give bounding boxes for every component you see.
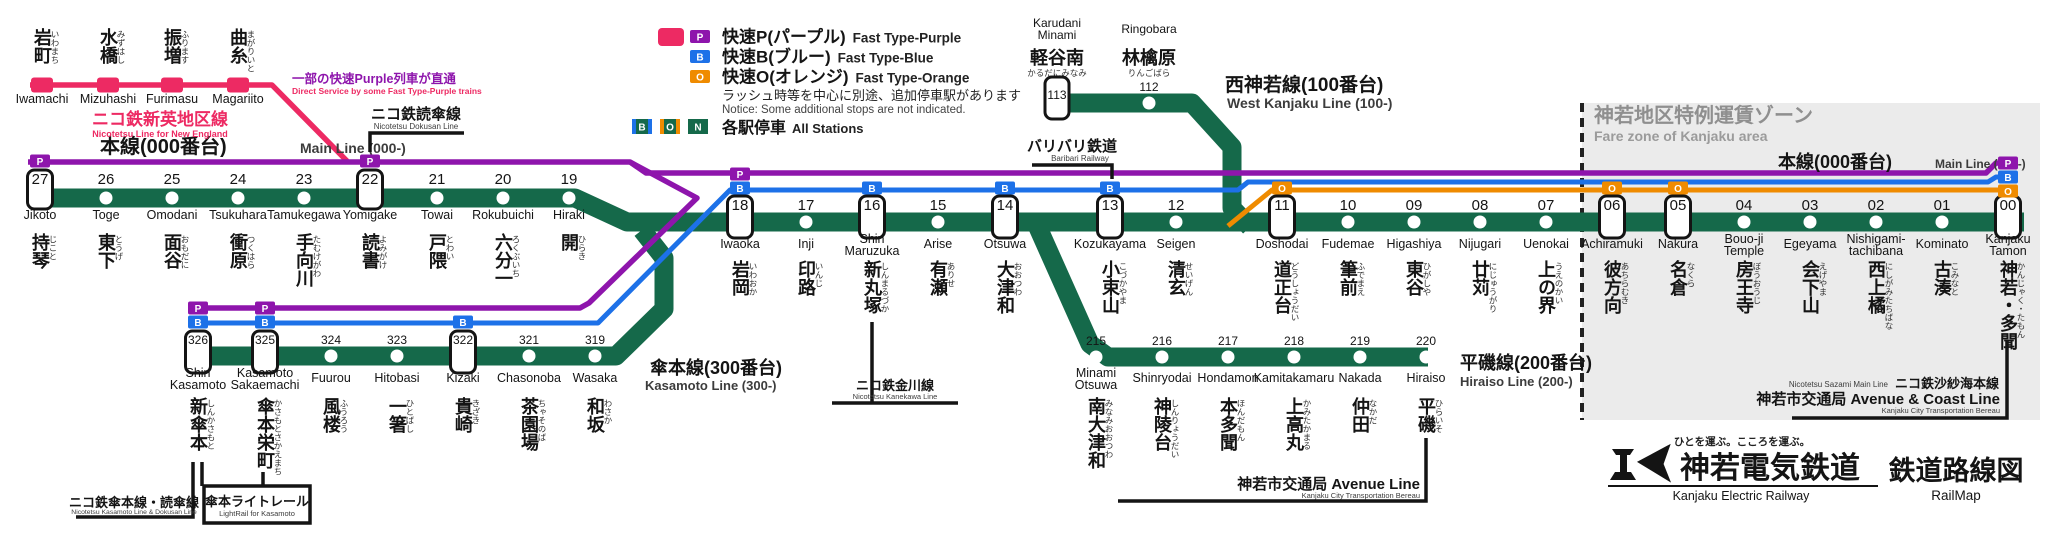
local-station-dot — [1420, 351, 1433, 364]
station-name-kana: おおつわ — [1013, 262, 1023, 296]
station-number: 11 — [1274, 197, 1290, 214]
station-name-kana: つくはら — [246, 235, 256, 269]
O-badge: O — [1668, 182, 1688, 196]
badge-letter: P — [262, 304, 269, 315]
station-name-kana: ろくぶいち — [511, 235, 521, 278]
O-badge: O — [1602, 182, 1622, 196]
station-jikoto: P27Jikoto持琴じこと — [24, 155, 58, 270]
station-name-jp: 振増 — [162, 27, 182, 65]
B-badge: B — [255, 316, 275, 330]
station-romaji: tachibana — [1849, 244, 1903, 258]
station-name-kana: えげやま — [1818, 262, 1828, 296]
station-romaji: Seigen — [1157, 237, 1196, 251]
P-badge: P — [730, 168, 750, 182]
kasamoto-stations: PB326ShinKasamoto新傘本しんかさもとPB325KasamotoS… — [170, 302, 618, 476]
station-number: 22 — [362, 171, 379, 188]
station-seigen: 12Seigen清玄せいげん — [1157, 197, 1196, 296]
station-romaji: Chasonoba — [497, 371, 561, 385]
station-name-jp: 持琴 — [30, 232, 50, 270]
station-name-kana: しんかさもと — [206, 399, 216, 450]
station-name-kana: しんりょうだい — [1170, 399, 1180, 459]
station-number: 02 — [1868, 197, 1885, 214]
station-romaji: Minami — [1038, 28, 1077, 42]
main-line-label-en: Main Line (000-) — [300, 140, 406, 156]
station-name-jp: 貴崎 — [453, 396, 473, 434]
station-name-kana: あちらむき — [1620, 262, 1630, 305]
station-name-jp: 和坂 — [585, 397, 605, 434]
station-name-kana: おもだに — [180, 235, 190, 269]
local-station-dot — [1408, 216, 1421, 229]
station-iwamachi: Iwamachi岩町いわまち — [16, 27, 69, 106]
station-fudemae: 10Fudemae筆前ふでまえ — [1322, 197, 1375, 297]
station-romaji: Nakada — [1338, 371, 1381, 385]
B-badge: B — [862, 182, 882, 196]
station-number: 24 — [230, 171, 247, 188]
station-name-jp: 風楼 — [321, 397, 341, 434]
k-arrow-glyph — [1640, 447, 1668, 479]
kasamoto-dokusan-label-en: Nicotetsu Kasamoto Line & Dokusan Line — [71, 509, 197, 516]
station-number: 15 — [930, 197, 947, 214]
station-number: 218 — [1284, 334, 1304, 348]
local-station-dot — [1936, 216, 1949, 229]
legend-notice-jp: ラッシュ時等を中心に別途、追加停車駅があります — [722, 88, 1021, 103]
station-number: 325 — [255, 333, 275, 347]
station-name-kana: じこと — [48, 235, 58, 261]
P-badge: P — [690, 30, 710, 44]
pink-station-marker — [161, 78, 183, 93]
P-badge: P — [1998, 157, 2018, 171]
station-kizaki: B322Kizaki貴崎きざき — [446, 316, 481, 434]
station-name-jp: 印路 — [796, 260, 816, 297]
station-mizuhashi: Mizuhashi水橋みずはし — [80, 27, 136, 106]
station-hiraki: 19Hiraki開ひらき — [553, 171, 587, 261]
baribari-label-en: Baribari Railway — [1051, 154, 1109, 163]
station-romaji: Shinryodai — [1132, 371, 1191, 385]
company-logo: ひとを運ぶ。こころを運ぶ。神若電気鉄道Kanjaku Electric Rail… — [1608, 436, 2024, 503]
station-name-jp: 茶園場 — [519, 396, 539, 452]
station-name-jp: 古湊 — [1932, 259, 1952, 297]
station-name-jp: 曲糸 — [228, 28, 248, 64]
badge-letter: B — [638, 123, 645, 134]
local-station-dot — [1222, 351, 1235, 364]
station-name-kana: ぼうおうじ — [1752, 262, 1762, 305]
local-station-dot — [1738, 216, 1751, 229]
local-station-dot — [166, 192, 179, 205]
lightrail-label-en: LightRail for Kasamoto — [219, 509, 295, 518]
station-name-jp: 小束山 — [1100, 260, 1120, 315]
station-name-kana: ふります — [180, 30, 190, 64]
station-romaji: Fudemae — [1322, 237, 1375, 251]
badge-letter: B — [696, 53, 703, 64]
local-station-dot — [1143, 97, 1156, 110]
station-name-kana: ひとばし — [405, 399, 415, 433]
kasamoto-dokusan-label-jp: ニコ鉄傘本線・読傘線 — [69, 495, 200, 510]
station-romaji: Otsuwa — [1075, 378, 1117, 392]
station-romaji: Hiraiso — [1407, 371, 1446, 385]
local-station-dot — [1288, 351, 1301, 364]
station-name-kana: ちゃそのば — [537, 399, 547, 442]
B-badge: B — [690, 50, 710, 64]
station-number: 12 — [1168, 197, 1185, 214]
station-yomigake: P22Yomigake読書よみがけ — [343, 155, 397, 270]
O-badge: O — [1272, 182, 1292, 196]
station-kozukayama: B13Kozukayama小束山こづかやま — [1074, 182, 1146, 315]
station-name-kana: ふでまえ — [1356, 262, 1366, 296]
station-name-kana: なかだ — [1368, 399, 1378, 425]
station-romaji: Achiramuki — [1581, 237, 1643, 251]
legend-row-label: 快速P(パープル)Fast Type-Purple — [722, 27, 962, 47]
local-station-dot — [1342, 216, 1355, 229]
station-towai: 21Towai戸隈とわい — [421, 171, 455, 270]
station-toge: 26Toge東下とうげ — [92, 171, 124, 270]
pink-line-swatch — [658, 28, 684, 46]
sazami-label-en: Nicotetsu Sazami Main Line — [1789, 380, 1889, 389]
station-name-jp: 面谷 — [162, 233, 182, 270]
station-number: 326 — [188, 333, 208, 347]
station-romaji: Sakaemachi — [231, 378, 300, 392]
station-rokubuichi: 20Rokubuichi六分一ろくぶいち — [472, 171, 534, 287]
station-name-kana: きざき — [471, 399, 481, 425]
station-number: 26 — [98, 171, 115, 188]
local-station-dot — [325, 350, 338, 363]
badge-letter: B — [459, 318, 466, 329]
station-number: 323 — [387, 333, 407, 347]
badge-letter: O — [1608, 184, 1616, 195]
station-name-kana: わさか — [603, 399, 613, 425]
station-number: 17 — [798, 197, 815, 214]
local-station-dot — [100, 192, 113, 205]
legend: P快速P(パープル)Fast Type-PurpleB快速B(ブルー)Fast … — [632, 27, 1021, 138]
baribari-label-jp: バリバリ鉄道 — [1027, 137, 1117, 155]
lightrail-label-jp: 傘本ライトレール — [205, 494, 309, 509]
station-name-kana: かんじゃく・たもん — [2016, 262, 2026, 339]
badge-letter: P — [37, 157, 44, 168]
station-name-jp: 戸隈 — [427, 233, 447, 270]
station-number: 03 — [1802, 197, 1819, 214]
badge-letter: O — [1674, 184, 1682, 195]
B-badge: B — [453, 316, 473, 330]
station-number: 215 — [1086, 334, 1106, 348]
west-line-label-en: West Kanjaku Line (100-) — [1227, 95, 1392, 111]
station-romaji: Wasaka — [573, 371, 618, 385]
company-name-en: Kanjaku Electric Railway — [1673, 489, 1811, 503]
station-name-kana: よみがけ — [378, 235, 388, 269]
station-romaji: Hitobasi — [374, 371, 419, 385]
local-station-dot — [1156, 351, 1169, 364]
legend-row-label: 快速O(オレンジ)Fast Type-Orange — [722, 67, 970, 87]
station-name-kana: みなみおおつわ — [1104, 399, 1114, 459]
fare-zone-title-en: Fare zone of Kanjaku area — [1594, 128, 1768, 144]
P-badge: P — [30, 155, 50, 169]
station-romaji: Iwaoka — [720, 237, 760, 251]
station-omodani: 25Omodani面谷おもだに — [147, 171, 198, 270]
pink-station-marker — [97, 78, 119, 93]
station-name-kana: にじゅうがり — [1488, 262, 1498, 313]
station-number: 05 — [1670, 197, 1687, 214]
lightrail-stems — [202, 462, 263, 486]
station-romaji: Tamukegawa — [267, 208, 341, 222]
station-name-kana: りんごばら — [1128, 68, 1171, 78]
station-number: 13 — [1102, 197, 1119, 214]
station-name-jp: 南大津和 — [1086, 396, 1106, 470]
station-number: 113 — [1047, 88, 1066, 102]
local-station-dot — [932, 216, 945, 229]
station-name-jp: 新傘本 — [188, 396, 208, 452]
station-arise: 15Arise有瀬ありせ — [924, 197, 956, 297]
station-romaji: Arise — [924, 237, 953, 251]
main-line-label-right-jp: 本線(000番台) — [1778, 151, 1892, 172]
badge-letter: B — [868, 184, 875, 195]
station-romaji: Tsukuhara — [209, 208, 267, 222]
new-england-stations: Iwamachi岩町いわまちMizuhashi水橋みずはしFurimasu振増ふ… — [16, 27, 264, 106]
station-romaji: Nijugari — [1459, 237, 1501, 251]
local-station-dot — [1354, 351, 1367, 364]
station-doshodai: O11Doshodai道正台どうしょうだい — [1256, 182, 1309, 322]
local-station-dot — [563, 192, 576, 205]
kasamoto-line-label-jp: 傘本線(300番台) — [650, 357, 782, 378]
station-name-kana: かみたかまる — [1302, 399, 1312, 450]
station-magariito: Magariito曲糸まがりいと — [212, 28, 263, 106]
station-name-kana: みずはし — [116, 30, 126, 64]
station-number: 01 — [1934, 197, 1951, 214]
badge-letter: B — [194, 318, 201, 329]
map-title-jp: 鉄道路線図 — [1889, 455, 2024, 486]
local-station-dot — [1090, 351, 1103, 364]
station-number: 27 — [32, 171, 49, 188]
station-romaji: Higashiya — [1387, 237, 1442, 251]
station-tsukuhara: 24Tsukuhara衝原つくはら — [209, 171, 267, 270]
station-number: 216 — [1152, 334, 1172, 348]
sazami-label-jp: ニコ鉄沙紗海本線 — [1895, 376, 2000, 391]
station-number: 20 — [495, 171, 512, 188]
station-shin-maruzuka: B16ShinMaruzuka新丸塚しんまるづか — [845, 182, 900, 315]
station-name-kana: うえのかい — [1554, 262, 1564, 305]
station-name-jp: 房王寺 — [1734, 259, 1754, 314]
station-name-jp: 林檎原 — [1122, 47, 1176, 68]
station-romaji: Uenokai — [1523, 237, 1569, 251]
station-romaji: Nakura — [1658, 237, 1698, 251]
station-romaji: Furimasu — [146, 92, 198, 106]
station-number: 09 — [1406, 197, 1423, 214]
station-romaji: Kamitakamaru — [1254, 371, 1335, 385]
local-station-dot — [391, 350, 404, 363]
station-romaji: Jikoto — [24, 208, 57, 222]
O-badge: O — [690, 70, 710, 84]
station-number: 23 — [296, 171, 313, 188]
station-romaji: Omodani — [147, 208, 198, 222]
station-romaji: Kominato — [1916, 237, 1969, 251]
station-number: 25 — [164, 171, 181, 188]
station-name-jp: 上の界 — [1536, 260, 1556, 315]
local-station-dot — [523, 350, 536, 363]
station-romaji: Doshodai — [1256, 237, 1309, 251]
station-number: 06 — [1604, 197, 1621, 214]
station-name-jp: 軽谷南 — [1030, 47, 1084, 68]
station-romaji: Toge — [92, 208, 119, 222]
badge-letter: P — [367, 157, 374, 168]
local-station-dot — [1170, 216, 1183, 229]
station-name-jp: 六分一 — [493, 232, 513, 287]
main_left-stations: P27Jikoto持琴じこと26Toge東下とうげ25Omodani面谷おもだに… — [24, 155, 587, 288]
station-name-jp: 会下山 — [1800, 259, 1820, 315]
station-name-kana: まがりいと — [246, 30, 256, 73]
hiraiso-line-label-jp: 平磯線(200番台) — [1460, 352, 1592, 373]
station-name-jp: 平磯 — [1416, 397, 1436, 434]
local-O-badge: O — [660, 119, 680, 134]
station-romaji: Tamon — [1989, 244, 2027, 258]
railway-route-map: 神若地区特例運賃ゾーンFare zone of Kanjaku area本線(0… — [0, 0, 2048, 541]
station-name-jp: 大津和 — [995, 259, 1015, 315]
station-number: 324 — [321, 333, 341, 347]
station-number: 322 — [453, 333, 473, 347]
P-badge: P — [360, 155, 380, 169]
station-name-kana: せいげん — [1184, 262, 1194, 296]
station-romaji: Magariito — [212, 92, 263, 106]
badge-letter: B — [736, 184, 743, 195]
station-name-kana: ひらいそ — [1434, 399, 1444, 433]
B-badge: B — [995, 182, 1015, 196]
legend-row-label: 快速B(ブルー)Fast Type-Blue — [722, 47, 934, 67]
station-number: 14 — [997, 197, 1014, 214]
station-number: 18 — [732, 197, 749, 214]
station-number: 219 — [1350, 334, 1370, 348]
station-romaji: Egeyama — [1784, 237, 1837, 251]
company-name-jp: 神若電気鉄道 — [1680, 451, 1860, 485]
station-name-jp: 仲田 — [1350, 396, 1370, 433]
avenue-label-en: Kanjaku City Transportation Bereau — [1302, 491, 1420, 500]
legend-row-1: B快速B(ブルー)Fast Type-Blue — [690, 47, 934, 67]
map-title-en: RailMap — [1931, 488, 1981, 503]
direct-service-note-jp: 一部の快速Purple列車が直通 — [292, 71, 456, 86]
station-name-kana: こみなと — [1950, 262, 1960, 296]
dokusan-label-en: Nicotetsu Dokusan Line — [374, 122, 459, 131]
local-station-dot — [1540, 216, 1553, 229]
station-name-kana: いわおか — [748, 262, 758, 296]
local-B-badge: B — [632, 119, 652, 134]
station-name-kana: たむけがわ — [312, 235, 322, 278]
station-number: 10 — [1340, 197, 1357, 214]
station-inji: 17Inji印路いんじ — [796, 197, 824, 297]
local-station-dot — [589, 350, 602, 363]
coast-label-en: Kanjaku City Transportation Bereau — [1882, 406, 2000, 415]
station-number: 220 — [1416, 334, 1436, 348]
station-name-kana: とうげ — [114, 235, 124, 261]
badge-letter: P — [2005, 159, 2012, 170]
station-name-kana: しんまるづか — [880, 262, 890, 313]
kanekawa-label-jp: ニコ鉄金川線 — [856, 378, 935, 393]
local-station-dot — [497, 192, 510, 205]
rail-profile-glyph — [1610, 449, 1636, 480]
local-N-badge: N — [688, 119, 708, 134]
local-station-dot — [232, 192, 245, 205]
station-name-kana: いわまち — [50, 30, 60, 64]
B-badge: B — [1100, 182, 1120, 196]
station-iwaoka: PB18Iwaoka岩岡いわおか — [720, 168, 760, 297]
badge-letter: P — [737, 170, 744, 181]
station-name-kana: かさもとさかえまち — [273, 399, 283, 476]
local-station-dot — [1804, 216, 1817, 229]
station-romaji: Rokubuichi — [472, 208, 534, 222]
station-number: 00 — [2000, 197, 2017, 214]
station-name-jp: 読書 — [360, 232, 380, 270]
station-name-jp: 筆前 — [1338, 259, 1358, 297]
local-station-dot — [431, 192, 444, 205]
station-kasamoto-sakaemachi: PB325KasamotoSakaemachi傘本栄町かさもとさかえまち — [231, 302, 300, 476]
station-romaji: Fuurou — [311, 371, 351, 385]
station-romaji: Mizuhashi — [80, 92, 136, 106]
station-romaji: Kasamoto — [170, 378, 226, 392]
new-england-label-en: Nicotetsu Line for New England — [92, 129, 228, 139]
station-name-kana: ひらき — [577, 235, 587, 261]
legend-notice-en: Notice: Some additional stops are not in… — [722, 104, 966, 116]
station-romaji: Otsuwa — [984, 237, 1026, 251]
station-name-jp: 彼方向 — [1602, 259, 1622, 315]
station-romaji: Kizaki — [446, 371, 479, 385]
station-name-kana: いんじ — [814, 262, 824, 288]
legend-row-2: O快速O(オレンジ)Fast Type-Orange — [690, 67, 970, 87]
station-name-jp: 道正台 — [1272, 259, 1292, 315]
direct-service-note-en: Direct Service by some Fast Type-Purple … — [292, 86, 482, 96]
station-romaji: Maruzuka — [845, 244, 900, 258]
station-number: 321 — [519, 333, 539, 347]
station-name-kana: ありせ — [946, 262, 956, 288]
station-number: 217 — [1218, 334, 1238, 348]
B-badge: B — [730, 182, 750, 196]
station-name-jp: 水橋 — [98, 27, 118, 65]
badge-letter: B — [1106, 184, 1113, 195]
station-name-jp: 有瀬 — [928, 259, 948, 297]
local-station-dot — [298, 192, 311, 205]
station-romaji: Temple — [1724, 244, 1764, 258]
B-badge: B — [188, 316, 208, 330]
badge-letter: O — [696, 73, 704, 84]
local-station-dot — [1474, 216, 1487, 229]
local-station-dot — [800, 216, 813, 229]
station-name-kana: なくら — [1686, 262, 1696, 288]
station-name-jp: 東下 — [96, 232, 116, 270]
station-romaji: Hondamon — [1197, 371, 1258, 385]
station-number: 19 — [561, 171, 578, 188]
badge-letter: B — [2004, 173, 2011, 184]
badge-letter: P — [195, 304, 202, 315]
badge-letter: O — [1278, 184, 1286, 195]
station-romaji: Ringobara — [1121, 22, 1177, 36]
badge-letter: B — [1001, 184, 1008, 195]
station-name-jp: 神陵台 — [1152, 396, 1172, 452]
station-name-jp: 本多聞 — [1218, 396, 1238, 451]
local-station-dot — [1870, 216, 1883, 229]
station-name-kana: どうしょうだい — [1290, 262, 1300, 322]
kasamoto-line-label-en: Kasamoto Line (300-) — [645, 378, 776, 393]
legend-local-label: 各駅停車All Stations — [721, 118, 864, 137]
station-romaji: Towai — [421, 208, 453, 222]
station-name-kana: ほんだもん — [1236, 399, 1246, 442]
P-badge: P — [255, 302, 275, 316]
station-romaji: Inji — [798, 237, 814, 251]
station-name-kana: ひがしや — [1422, 262, 1432, 296]
station-romaji: Hiraki — [553, 208, 585, 222]
station-number: 16 — [864, 197, 881, 214]
station-number: 21 — [429, 171, 446, 188]
station-name-jp: 開 — [559, 233, 579, 252]
station-romaji: Yomigake — [343, 208, 397, 222]
hiraiso-line-label-en: Hiraiso Line (200-) — [1460, 374, 1573, 389]
west-line-label-jp: 西神若線(100番台) — [1225, 73, 1383, 96]
badge-letter: P — [697, 33, 704, 44]
badge-letter: O — [666, 123, 674, 134]
station-number: 07 — [1538, 197, 1555, 214]
pink-station-marker — [31, 78, 53, 93]
